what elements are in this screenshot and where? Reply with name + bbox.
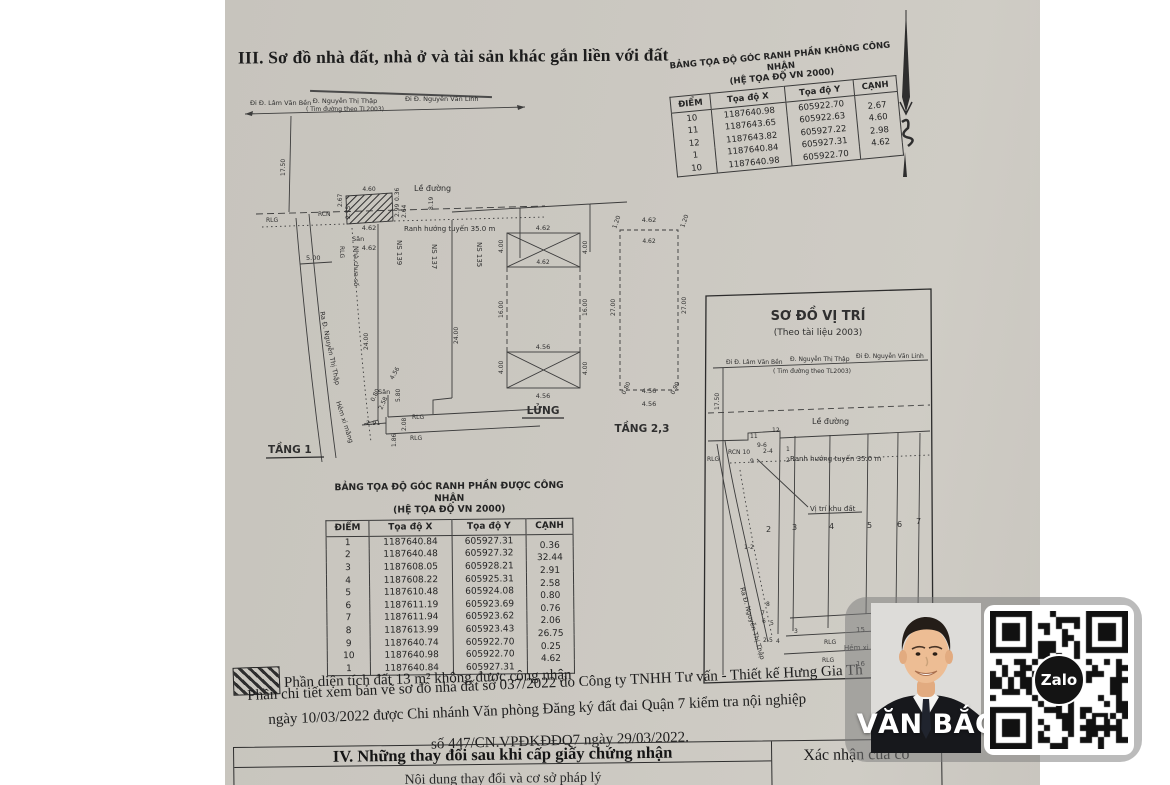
svg-text:4.62: 4.62 [362, 224, 376, 232]
zalo-logo: Zalo [1033, 654, 1085, 706]
svg-text:4.00: 4.00 [582, 361, 589, 375]
table-row: 11187640.84605927.310.36 [326, 534, 573, 550]
svg-text:RLG: RLG [412, 414, 425, 421]
table-title: BẢNG TỌA ĐỘ GÓC RANH PHẦN ĐƯỢC CÔNG NHẬN… [325, 480, 573, 517]
agent-name: VĂN BẮC [851, 709, 1001, 740]
svg-text:2.67: 2.67 [337, 193, 344, 207]
svg-text:NS 137: NS 137 [430, 244, 438, 269]
svg-text:27.00: 27.00 [681, 297, 688, 314]
svg-text:4.56: 4.56 [642, 387, 656, 395]
svg-text:RLG: RLG [266, 217, 279, 224]
svg-text:Nhà chưa số: Nhà chưa số [352, 246, 360, 286]
svg-text:6: 6 [897, 520, 902, 529]
svg-text:RLG: RLG [410, 435, 423, 442]
svg-text:( Tim đường theo TL2003): ( Tim đường theo TL2003) [773, 368, 851, 375]
coord-table-duoc-cong-nhan: BẢNG TỌA ĐỘ GÓC RANH PHẦN ĐƯỢC CÔNG NHẬN… [325, 480, 575, 677]
svg-text:4: 4 [829, 522, 834, 531]
svg-text:1.20: 1.20 [611, 215, 622, 230]
svg-text:5.80: 5.80 [395, 388, 402, 402]
svg-text:NS 135: NS 135 [475, 242, 483, 267]
svg-text:RLG: RLG [824, 639, 837, 646]
svg-text:8.19: 8.19 [428, 196, 435, 210]
svg-text:5: 5 [770, 620, 774, 627]
svg-text:0.80: 0.80 [620, 381, 632, 396]
svg-text:9: 9 [750, 458, 754, 465]
svg-text:Đi Đ. Nguyễn Văn Linh: Đi Đ. Nguyễn Văn Linh [405, 94, 479, 103]
zalo-qr-code: Zalo [984, 605, 1134, 755]
section4-title: IV. Những thay đổi sau khi cấp giấy chứn… [234, 741, 771, 768]
svg-text:0.90: 0.90 [669, 381, 681, 396]
svg-text:SƠ ĐỒ VỊ TRÍ: SƠ ĐỒ VỊ TRÍ [771, 306, 866, 324]
svg-text:LỬNG: LỬNG [527, 403, 560, 417]
svg-text:1.86: 1.86 [391, 433, 398, 447]
svg-text:8: 8 [766, 601, 770, 608]
svg-text:(Theo tài liệu 2003): (Theo tài liệu 2003) [774, 327, 863, 338]
svg-text:0.36: 0.36 [394, 187, 401, 201]
svg-text:Hẻm xi măng: Hẻm xi măng [334, 400, 355, 444]
svg-text:1-2: 1-2 [744, 544, 754, 551]
svg-text:24.00: 24.00 [363, 333, 370, 350]
section4-partial-row: Nội dung thay đổi và cơ sở pháp lý [234, 768, 771, 785]
section4-left-cell: IV. Những thay đổi sau khi cấp giấy chứn… [234, 741, 773, 785]
svg-text:6: 6 [762, 618, 766, 625]
svg-text:4.00: 4.00 [582, 240, 589, 254]
svg-text:2.08: 2.08 [401, 417, 408, 431]
svg-text:Đi Đ. Nguyễn Văn Linh: Đi Đ. Nguyễn Văn Linh [856, 353, 924, 360]
svg-text:1.20: 1.20 [679, 214, 690, 229]
svg-text:Ranh hướng tuyến 35.0 m: Ranh hướng tuyến 35.0 m [404, 225, 495, 233]
svg-text:RCN: RCN [318, 211, 331, 218]
svg-text:Đi Đ. Lâm Văn Bền: Đi Đ. Lâm Văn Bền [250, 99, 311, 107]
svg-text:Đi Đ. Lâm Văn Bền: Đi Đ. Lâm Văn Bền [726, 358, 783, 366]
svg-text:7: 7 [916, 517, 921, 526]
svg-text:4.62: 4.62 [642, 238, 656, 245]
watermark-overlay: VĂN BẮC Zalo [845, 597, 1142, 762]
floorplan-drawing: Đi Đ. Lâm Văn Bền Đ. Nguyễn Thị Thập ( T… [235, 90, 700, 475]
scanned-document: III. Sơ đồ nhà đất, nhà ở và tài sản khá… [0, 0, 1170, 785]
svg-text:16.00: 16.00 [498, 301, 505, 318]
svg-text:Ra Đ. Nguyễn Thị Thập: Ra Đ. Nguyễn Thị Thập [318, 311, 342, 386]
svg-text:2.99: 2.99 [394, 203, 401, 217]
svg-text:2-5: 2-5 [763, 637, 773, 644]
svg-text:4: 4 [776, 638, 780, 645]
svg-text:Lề đường: Lề đường [414, 183, 451, 193]
svg-text:17.50: 17.50 [714, 393, 721, 410]
svg-text:RLG: RLG [707, 456, 720, 463]
svg-text:4.00: 4.00 [498, 360, 505, 374]
svg-text:4.62: 4.62 [642, 216, 656, 224]
svg-text:4.62: 4.62 [536, 259, 550, 266]
section3-title: III. Sơ đồ nhà đất, nhà ở và tài sản khá… [238, 44, 669, 68]
svg-text:Vị trí khu đất: Vị trí khu đất [810, 505, 856, 513]
svg-text:TẦNG 1: TẦNG 1 [268, 442, 312, 456]
svg-text:2.64: 2.64 [401, 204, 408, 218]
svg-text:4.56: 4.56 [389, 366, 402, 381]
svg-text:1: 1 [786, 446, 790, 453]
section4-table: IV. Những thay đổi sau khi cấp giấy chứn… [233, 738, 943, 785]
svg-text:Đ. Nguyễn Thị Thập: Đ. Nguyễn Thị Thập [313, 96, 377, 105]
svg-text:Sân: Sân [352, 235, 364, 243]
svg-text:TẦNG 2,3: TẦNG 2,3 [615, 421, 670, 435]
svg-text:2: 2 [766, 525, 771, 534]
svg-text:Đ. Nguyễn Thị Thập: Đ. Nguyễn Thị Thập [790, 356, 850, 363]
coord-table-khong-cong-nhan: BẢNG TỌA ĐỘ GÓC RANH PHẦN KHÔNG CÔNG NHẬ… [666, 40, 904, 177]
svg-text:4.00: 4.00 [498, 239, 505, 253]
svg-text:3: 3 [792, 523, 797, 532]
svg-text:4.60: 4.60 [362, 186, 376, 193]
svg-text:3: 3 [794, 628, 798, 635]
svg-text:16.00: 16.00 [582, 299, 589, 316]
svg-text:24.00: 24.00 [453, 327, 460, 344]
svg-text:4.56: 4.56 [642, 400, 656, 408]
svg-text:2.75: 2.75 [345, 205, 352, 219]
svg-text:4.62: 4.62 [536, 224, 550, 232]
svg-text:4.56: 4.56 [536, 392, 550, 400]
svg-text:7: 7 [761, 610, 765, 617]
svg-text:2-4: 2-4 [763, 448, 773, 455]
svg-text:4.56: 4.56 [536, 343, 550, 351]
svg-text:27.00: 27.00 [610, 299, 617, 316]
svg-text:5: 5 [867, 521, 872, 530]
svg-text:17.50: 17.50 [280, 159, 287, 176]
table-header-row: ĐIỂM Tọa độ X Tọa độ Y CẠNH [326, 518, 573, 537]
svg-text:11: 11 [750, 433, 758, 440]
svg-text:Lề đường: Lề đường [812, 416, 849, 426]
svg-text:( Tim đường theo TL2003): ( Tim đường theo TL2003) [306, 106, 384, 113]
svg-text:2.91: 2.91 [366, 419, 380, 427]
svg-text:NS 139: NS 139 [395, 240, 403, 265]
svg-text:4.62: 4.62 [362, 244, 376, 252]
svg-text:12: 12 [772, 427, 780, 434]
svg-text:RLG: RLG [338, 246, 345, 259]
svg-text:RCN 10: RCN 10 [728, 449, 750, 456]
